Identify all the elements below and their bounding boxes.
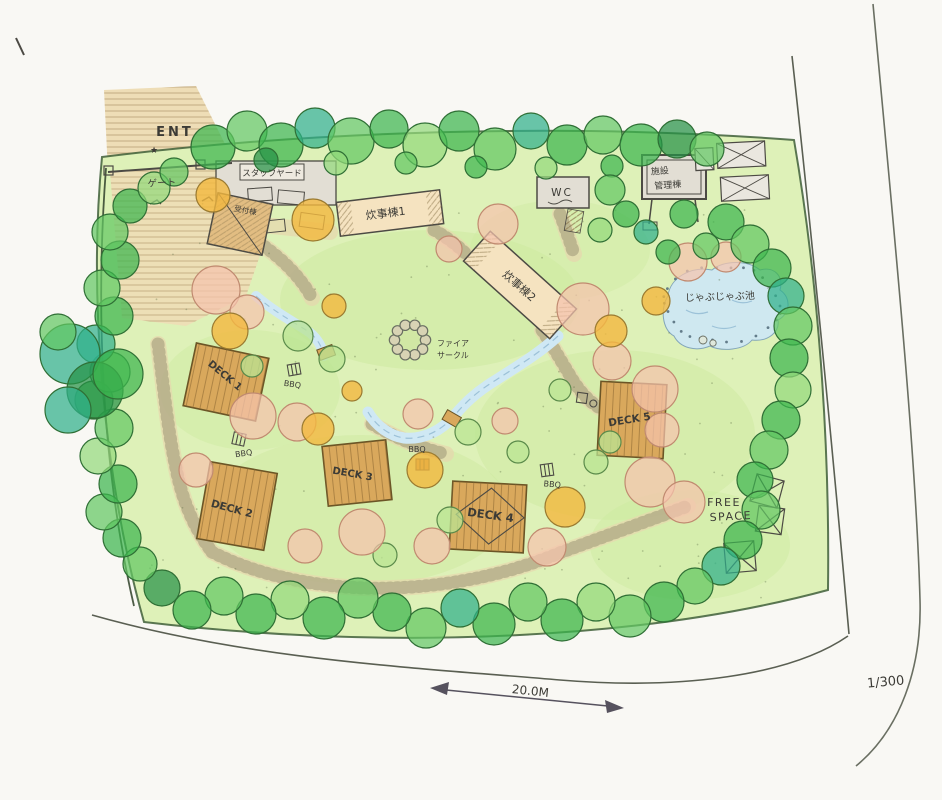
scale-bar: 20.0M xyxy=(430,682,624,713)
paper-mark xyxy=(16,38,24,55)
entrance-star-icon: ★ xyxy=(150,146,158,156)
site-plan-sheet: 炊事棟2 xyxy=(0,0,942,800)
scale-ratio-label: 1/300 xyxy=(866,673,905,691)
gate-label: ゲート xyxy=(147,176,176,189)
free-space-label-line2: SPACE xyxy=(709,509,752,524)
fire-circle-label-line2: サークル xyxy=(437,351,469,360)
entrance-label: ENT xyxy=(156,125,194,140)
site-plan-drawing: 炊事棟2 xyxy=(0,0,942,800)
wc-label: WC xyxy=(551,187,573,199)
bbq-label-4: BBQ xyxy=(543,479,561,489)
fire-circle xyxy=(389,320,430,360)
bbq-label-3: BBQ xyxy=(408,445,425,454)
fire-circle-label-line1: ファイア xyxy=(437,339,469,348)
free-space-label-line1: FREE xyxy=(707,496,741,509)
staff-yard-label: スタッフヤード xyxy=(242,169,302,179)
